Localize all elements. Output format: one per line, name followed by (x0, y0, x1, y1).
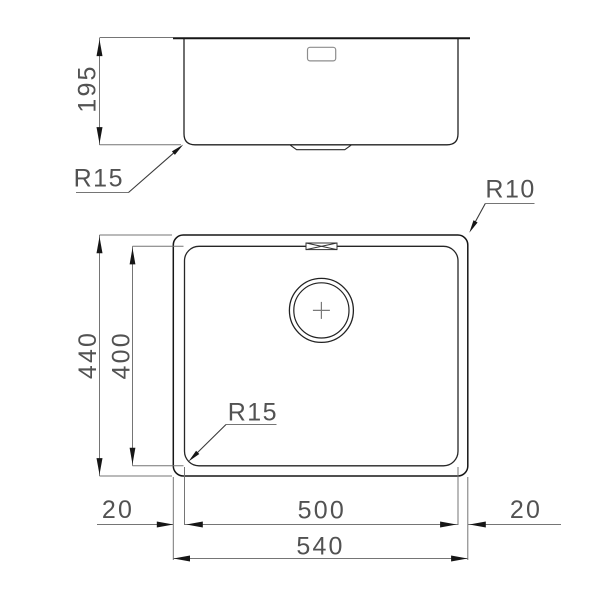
svg-text:R15: R15 (228, 398, 278, 426)
svg-text:R15: R15 (74, 165, 124, 193)
svg-text:20: 20 (102, 496, 134, 524)
svg-text:195: 195 (74, 64, 102, 112)
svg-text:540: 540 (296, 533, 344, 561)
svg-text:20: 20 (510, 496, 542, 524)
svg-text:500: 500 (298, 496, 346, 524)
svg-text:R10: R10 (485, 176, 535, 204)
svg-text:400: 400 (108, 331, 136, 379)
svg-text:440: 440 (74, 331, 102, 379)
